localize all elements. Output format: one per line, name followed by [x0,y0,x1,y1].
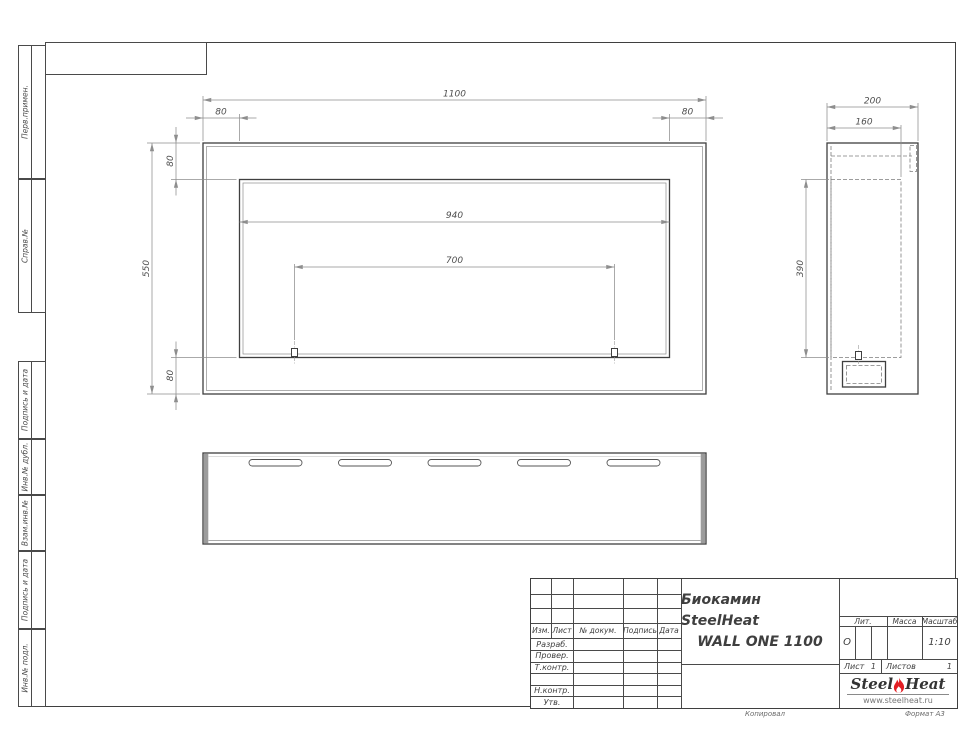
dim-front-right-margin: 80 [682,108,694,118]
front-view-dimensions: 1100 80 80 80 550 80 940 700 [142,90,723,411]
copy-note: Копировал [745,710,785,718]
document-title: Биокамин SteelHeat WALL ONE 1100 [681,579,839,664]
dim-side-depth: 200 [864,97,881,107]
tb-sheets-label: Листов [886,662,916,671]
flame-icon [892,677,906,694]
drawing-sheet: Перв.примен. Справ.№ Подпись и дата Инв.… [0,0,970,750]
dim-front-bracket-spacing: 700 [446,256,463,266]
dim-front-height: 550 [142,260,152,277]
logo-word-heat: Heat [905,677,945,692]
side-view [827,143,918,394]
logo-rule [847,694,949,695]
tb-scale-value: 1:10 [922,626,957,659]
logo-url: www.steelheat.ru [863,696,933,705]
vent-slot-5 [607,460,660,467]
document-title-line1: Биокамин SteelHeat [681,590,839,632]
tb-header-izm: Изм. [531,623,551,638]
tb-row-prover: Провер. [531,650,573,662]
tb-sheet-label: Лист [844,662,864,671]
wall-bracket-side [910,146,917,172]
tb-lit-value: О [839,626,855,659]
dim-front-top-margin: 80 [166,155,176,167]
front-view [203,143,706,394]
dim-front-opening-width: 940 [446,211,463,221]
logo-word-steel: Steel [851,677,894,692]
format-note: Формат А3 [905,710,945,718]
dim-front-width: 1100 [443,90,466,100]
vent-slot-2 [339,460,392,467]
tb-sheet-value: 1 [871,662,876,671]
company-logo: Steel Heat www.steelheat.ru [839,673,957,708]
tb-header-list: Лист [551,623,573,638]
logo-wordmark: Steel Heat [851,676,946,693]
tb-row-razrab: Разраб. [531,638,573,650]
dim-side-opening-height: 390 [796,260,806,277]
dim-front-bottom-margin: 80 [166,370,176,382]
side-view-dimensions: 200 160 390 [796,97,918,358]
vent-slot-1 [249,460,302,467]
tb-row-utv: Утв. [531,696,573,708]
tb-lit-label: Лит. [839,616,887,626]
document-title-line2: WALL ONE 1100 [697,632,823,653]
vent-slot-4 [518,460,571,467]
title-block: Изм. Лист № докум. Подпись Дата Разраб. … [530,578,958,709]
mounting-bracket-left [292,349,298,357]
bottom-view [203,453,706,544]
tb-sheets-cell: Листов 1 [881,659,957,673]
dim-front-left-margin: 80 [215,108,227,118]
tb-mass-label: Масса [887,616,922,626]
tb-row-tkontr: Т.контр. [531,662,573,674]
tb-header-data: Дата [657,623,681,638]
dim-side-inner-depth: 160 [855,118,872,128]
tb-row-blank [531,673,573,685]
vent-slot-3 [428,460,481,467]
tb-header-podpis: Подпись [623,623,657,638]
mounting-bracket-side [856,352,862,360]
tb-sheet-cell: Лист 1 [839,659,881,673]
tb-row-nkontr: Н.контр. [531,685,573,697]
tb-sheets-value: 1 [947,662,952,671]
tb-scale-label: Масштаб [922,616,957,626]
mounting-bracket-right [612,349,618,357]
tb-header-docnum: № докум. [573,623,623,638]
